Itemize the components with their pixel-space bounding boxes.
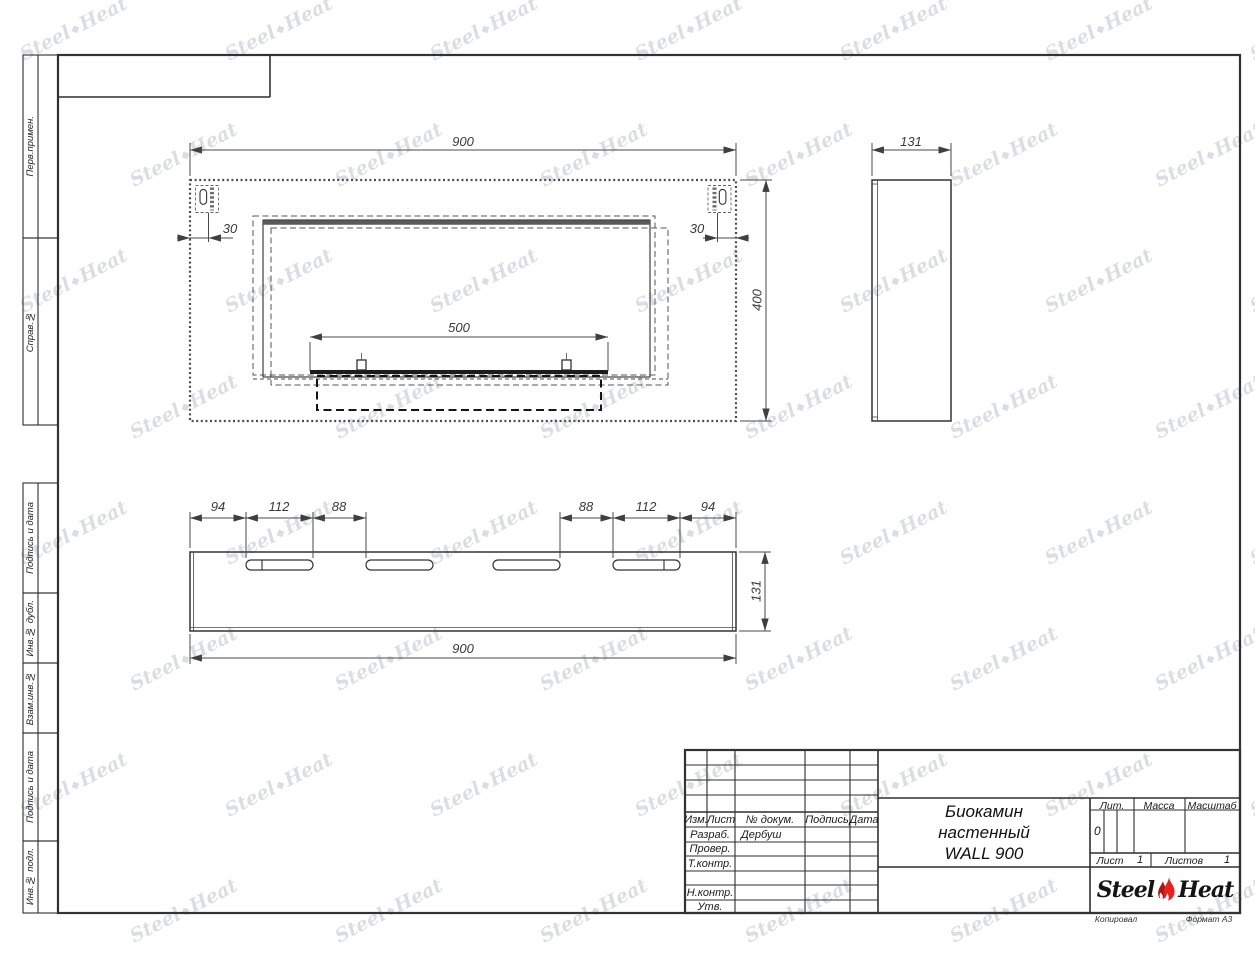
scale-label: Масштаб [1187, 800, 1236, 812]
product-title-line3: WALL 900 [945, 843, 1024, 864]
sheet-label: Лист [1096, 855, 1123, 867]
dim-bottom-seg-88-right: 88 [579, 499, 593, 514]
flame-icon [1156, 877, 1176, 903]
margin-label-podpis-data-2: Подпись и дата [23, 733, 38, 841]
steelheat-logo: Steel Heat [1090, 867, 1240, 913]
revision-col-izm: Изм. [684, 814, 707, 826]
margin-label-podpis-data-1: Подпись и дата [23, 483, 38, 593]
dim-bottom-seg-112-left: 112 [269, 499, 290, 514]
sheets-value: 1 [1224, 854, 1230, 866]
dim-mount-offset-left: 30 [223, 221, 237, 236]
staff-label-razrab: Разраб. [690, 829, 730, 841]
format-label: Формат А3 [1186, 914, 1233, 924]
revision-col-data: Дата [849, 814, 878, 826]
staff-label-prover: Провер. [690, 843, 731, 855]
drawing-sheet: Steel◆HeatSteel◆HeatSteel◆HeatSteel◆Heat… [0, 0, 1255, 970]
dim-side-depth: 131 [900, 134, 922, 149]
product-title-line1: Биокамин [945, 801, 1023, 822]
sheet-frame [58, 55, 1240, 913]
staff-label-nkontr: Н.контр. [687, 887, 734, 899]
bottom-view [190, 552, 736, 631]
revision-col-ndokum: № докум. [746, 814, 794, 826]
revision-col-list: Лист [707, 814, 735, 826]
product-title: Биокамин настенный WALL 900 [878, 798, 1090, 867]
dim-bottom-seg-112-right: 112 [636, 499, 657, 514]
dim-bottom-seg-94-right: 94 [701, 499, 715, 514]
front-view-dimensions [177, 143, 772, 421]
dim-mount-offset-right: 30 [690, 221, 704, 236]
sheet-value: 1 [1137, 854, 1143, 866]
lit-label: Лит. [1100, 800, 1125, 812]
dim-front-height: 400 [750, 289, 765, 311]
logo-word-steel: Steel [1097, 877, 1154, 903]
mass-label: Масса [1143, 800, 1174, 812]
dim-front-width: 900 [452, 134, 474, 149]
margin-label-perv-primen: Перв.примен. [23, 55, 38, 238]
revision-col-podpis: Подпись [805, 814, 849, 826]
staff-label-tkontr: Т.контр. [688, 858, 732, 870]
front-view [190, 180, 736, 421]
sheets-label: Листов [1165, 855, 1203, 867]
dim-bottom-depth: 131 [749, 580, 764, 602]
margin-label-inv-podl: Инв.№ подл. [23, 841, 38, 913]
side-view [872, 180, 951, 421]
dim-burner-width: 500 [448, 320, 470, 335]
margin-label-vzam-inv: Взам.инв.№ [23, 663, 38, 733]
copied-label: Копировал [1095, 914, 1137, 924]
staff-value-razrab: Дербуш [741, 829, 782, 841]
dim-bottom-width: 900 [452, 641, 474, 656]
lit-value: 0 [1094, 824, 1101, 838]
bottom-view-dimensions [190, 512, 771, 664]
product-title-line2: настенный [938, 822, 1030, 843]
dim-bottom-seg-88-left: 88 [332, 499, 346, 514]
margin-label-sprav-no: Справ.№ [23, 238, 38, 425]
staff-label-utv: Утв. [698, 901, 723, 913]
dim-bottom-seg-94-left: 94 [211, 499, 225, 514]
margin-label-inv-dubl: Инв.№ дубл. [23, 593, 38, 663]
logo-word-heat: Heat [1178, 877, 1233, 903]
